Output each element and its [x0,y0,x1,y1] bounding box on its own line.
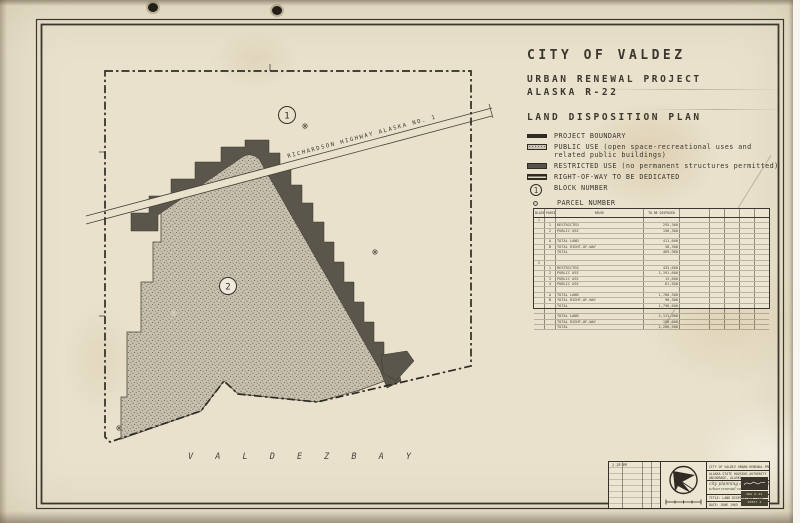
table-cell [755,245,768,249]
project-title-line1: URBAN RENEWAL PROJECT [527,74,783,85]
table-cell [534,245,545,249]
table-cell [680,239,710,243]
table-cell [534,234,545,238]
table-cell [755,239,768,243]
legend-label: PROJECT BOUNDARY [554,132,626,140]
table-cell [755,277,768,281]
table-cell [556,309,644,313]
table-cell [740,309,755,313]
table-cell [725,223,740,227]
table-cell [755,266,768,270]
table-cell [725,282,740,286]
table-cell [680,271,710,275]
table-cell [534,282,545,286]
legend-label: RESTRICTED USE (no permanent structures … [554,162,779,170]
table-cell [710,245,725,249]
table-cell [740,314,755,318]
table-cell [740,320,755,324]
table-cell: 433,600 [644,266,680,270]
legend-label: RIGHT-OF-WAY TO BE DEDICATED [554,173,680,181]
page-title: CITY OF VALDEZ [527,48,783,63]
table-cell [725,261,740,265]
tb-sheet-box: SHEET 2 [741,499,768,506]
tb-project-line: CITY OF VALDEZ URBAN RENEWAL PROJECT - A… [707,462,769,471]
table-cell: TOTAL [556,325,644,329]
table-cell [710,314,725,318]
plan-title: LAND DISPOSITION PLAN [527,112,783,123]
table-cell [680,277,710,281]
table-cell [725,314,740,318]
table-cell [534,287,545,291]
table-cell: TOTAL RIGHT-OF-WAY [556,320,644,324]
table-cell [710,229,725,233]
table-cell [725,250,740,254]
logo-arrow-icon [673,471,695,493]
table-header-cell [710,209,725,217]
table-cell: RESTRICTED [556,266,644,270]
table-header-cell [755,209,768,217]
table-cell [710,309,725,313]
table-cell [755,234,768,238]
table-cell: 2 [534,261,545,265]
table-cell: 2 [545,271,556,275]
table-cell [755,218,768,222]
table-cell [545,304,556,308]
table-cell [740,229,755,233]
table-cell [740,255,755,259]
table-cell [534,325,545,329]
table-cell [680,250,710,254]
table-cell: A [545,239,556,243]
table-cell [755,309,768,313]
table-cell [545,234,556,238]
table-cell [740,325,755,329]
table-cell: 156,300 [644,229,680,233]
table-cell [725,239,740,243]
block-number-1: 1 [279,107,296,124]
table-header-cell: BLOCK [534,209,545,217]
table-cell [725,271,740,275]
table-cell [680,320,710,324]
graphic-scale-icon [666,500,701,505]
table-cell [534,239,545,243]
table-cell: 58,300 [644,245,680,249]
table-cell: 156,600 [644,320,680,324]
table-header-cell: REUSE [556,209,644,217]
table-cell [680,309,710,313]
table-cell [534,320,545,324]
svg-text:1: 1 [284,112,289,122]
table-cell [725,255,740,259]
table-cell [545,309,556,313]
table-cell [755,229,768,233]
table-cell: 2,268,500 [644,325,680,329]
table-cell [556,218,644,222]
table-cell [545,314,556,318]
table-cell [680,282,710,286]
table-cell [534,266,545,270]
table-cell [725,266,740,270]
table-cell [534,250,545,254]
legend: PROJECT BOUNDARY PUBLIC USE (open space-… [527,132,783,207]
table-cell [545,287,556,291]
table-cell [710,287,725,291]
table-cell [680,245,710,249]
plan-sheet: 1 2 RICHARDSON HIGHWAY ALASKA NO. 1 V A … [0,0,800,523]
table-cell [545,218,556,222]
table-cell [710,239,725,243]
table-cell [644,261,680,265]
parcel-swatch-icon [533,201,538,206]
table-cell [740,218,755,222]
table-cell [556,287,644,291]
table-cell [710,255,725,259]
table-cell: PUBLIC USE [556,229,644,233]
legend-label: PARCEL NUMBER [557,199,615,207]
table-header-row: BLOCKPARCELREUSETO BE DISPOSED [534,209,769,218]
table-cell: 1 [545,266,556,270]
table-cell: TOTAL [556,304,644,308]
table-cell [755,304,768,308]
table-cell [755,250,768,254]
table-cell [740,293,755,297]
table-cell [710,293,725,297]
table-cell: 1 [534,218,545,222]
table-cell: 469,900 [644,250,680,254]
table-cell: TOTAL RIGHT-OF-WAY [556,298,644,302]
table-cell [680,293,710,297]
table-cell [740,234,755,238]
table-header-cell: TO BE DISPOSED [644,209,680,217]
table-cell: 2 [545,229,556,233]
table-cell: PUBLIC USE [556,271,644,275]
table-cell [710,223,725,227]
table-cell [710,325,725,329]
legend-item: PARCEL NUMBER [527,199,783,207]
table-cell: B [545,245,556,249]
table-cell: A [545,293,556,297]
table-cell [680,261,710,265]
table-cell [534,298,545,302]
table-cell [755,282,768,286]
legend-item: 1 BLOCK NUMBER [527,184,783,196]
table-cell: 1,191,600 [644,271,680,275]
table-cell [755,271,768,275]
table-cell [680,266,710,270]
table-cell: 13,600 [644,277,680,281]
table-cell: 61,500 [644,282,680,286]
table-cell [740,287,755,291]
table-cell [755,223,768,227]
table-header-cell [725,209,740,217]
table-row: TOTAL2,268,500 [534,325,769,330]
table-cell [725,234,740,238]
revision-note: 2-28-66 [612,462,627,467]
table-cell [740,304,755,308]
block-swatch-icon: 1 [530,184,542,196]
table-cell [740,277,755,281]
table-cell [725,293,740,297]
table-cell [556,234,644,238]
table-cell [710,266,725,270]
table-cell [644,255,680,259]
table-cell [680,255,710,259]
table-cell [710,271,725,275]
table-cell [644,218,680,222]
table-cell [710,282,725,286]
table-cell [644,309,680,313]
signature-icon [744,482,765,485]
restricted-swatch-icon [527,163,547,169]
table-header-cell [740,209,755,217]
bay-label: V A L D E Z B A Y [188,452,420,462]
table-cell [740,245,755,249]
table-cell [534,277,545,281]
table-cell [725,309,740,313]
table-cell [710,234,725,238]
table-cell: TOTAL LAND [556,239,644,243]
table-cell: 98,300 [644,298,680,302]
legend-item: RESTRICTED USE (no permanent structures … [527,162,783,170]
table-cell [740,271,755,275]
table-cell [680,298,710,302]
table-cell [545,255,556,259]
table-cell [534,229,545,233]
project-title-line2: ALASKA R-22 [527,87,783,98]
table-cell [556,255,644,259]
table-cell [755,325,768,329]
table-cell [710,261,725,265]
legend-item: RIGHT-OF-WAY TO BE DEDICATED [527,173,783,181]
row-swatch-icon [527,174,547,180]
table-cell [740,298,755,302]
table-cell: 411,600 [644,239,680,243]
table-cell [740,223,755,227]
table-header-cell [680,209,710,217]
table-cell: 1,700,300 [644,293,680,297]
table-cell: TOTAL LAND [556,293,644,297]
table-cell [545,261,556,265]
legend-label: PUBLIC USE (open space-recreational uses… [554,143,752,159]
table-cell: 1,798,600 [644,304,680,308]
table-cell [680,304,710,308]
legend-item: PROJECT BOUNDARY [527,132,783,140]
table-cell [725,320,740,324]
table-cell [710,277,725,281]
table-cell [755,298,768,302]
table-cell: TOTAL [556,250,644,254]
table-cell [680,223,710,227]
table-cell [755,320,768,324]
legend-label: BLOCK NUMBER [554,184,608,192]
table-header-cell: PARCEL [545,209,556,217]
table-cell [680,287,710,291]
table-cell [680,218,710,222]
table-cell [710,298,725,302]
table-cell: 4 [545,282,556,286]
table-cell [755,293,768,297]
table-cell [644,234,680,238]
table-cell [680,325,710,329]
table-cell [755,314,768,318]
signature-box [741,477,768,490]
revision-table: 2-28-66 [609,462,661,508]
table-cell [725,287,740,291]
table-cell [534,223,545,227]
table-cell [725,245,740,249]
table-cell [755,255,768,259]
table-cell [545,250,556,254]
table-cell: TOTAL RIGHT-OF-WAY [556,245,644,249]
table-cell [680,229,710,233]
block-number-2: 2 [220,278,237,295]
table-cell [710,320,725,324]
disposition-table: BLOCKPARCELREUSETO BE DISPOSED11RESTRICT… [533,208,770,309]
table-cell [740,239,755,243]
table-cell: 2,111,900 [644,314,680,318]
table-cell [545,320,556,324]
table-cell [534,271,545,275]
table-cell: RESTRICTED [556,223,644,227]
table-cell [740,250,755,254]
public-swatch-icon [527,144,547,150]
table-cell [725,304,740,308]
table-cell [755,261,768,265]
table-cell [725,325,740,329]
table-cell [740,266,755,270]
table-cell [644,287,680,291]
table-cell [556,261,644,265]
highway-label: RICHARDSON HIGHWAY ALASKA NO. 1 [287,115,437,160]
table-cell [545,325,556,329]
table-cell: B [545,298,556,302]
table-cell [740,282,755,286]
table-cell [680,314,710,318]
table-cell [534,255,545,259]
legend-item: PUBLIC USE (open space-recreational uses… [527,143,783,159]
svg-text:2: 2 [225,283,230,293]
table-cell [710,218,725,222]
title-block-text: CITY OF VALDEZ URBAN RENEWAL PROJECT - A… [707,462,769,508]
table-cell: 1 [545,223,556,227]
table-cell: 255,300 [644,223,680,227]
table-cell [755,287,768,291]
title-block: 2-28-66 CITY OF VALDEZ URBAN RENEWAL PRO… [608,461,770,509]
table-cell [534,304,545,308]
agency-logo [661,462,707,508]
table-cell [534,314,545,318]
table-cell [725,218,740,222]
table-cell [680,234,710,238]
table-cell [725,298,740,302]
table-cell [534,309,545,313]
table-cell: TOTAL LAND [556,314,644,318]
table-cell [710,250,725,254]
table-cell [534,293,545,297]
table-cell: PUBLIC USE [556,282,644,286]
table-cell: PUBLIC USE [556,277,644,281]
table-cell: 3 [545,277,556,281]
tb-dwg-box: DWG R-22 [741,491,768,498]
title-legend-panel: CITY OF VALDEZ URBAN RENEWAL PROJECT ALA… [527,48,783,207]
table-cell [710,304,725,308]
table-cell [725,277,740,281]
table-cell [740,261,755,265]
table-cell [725,229,740,233]
boundary-swatch-icon [527,134,547,138]
